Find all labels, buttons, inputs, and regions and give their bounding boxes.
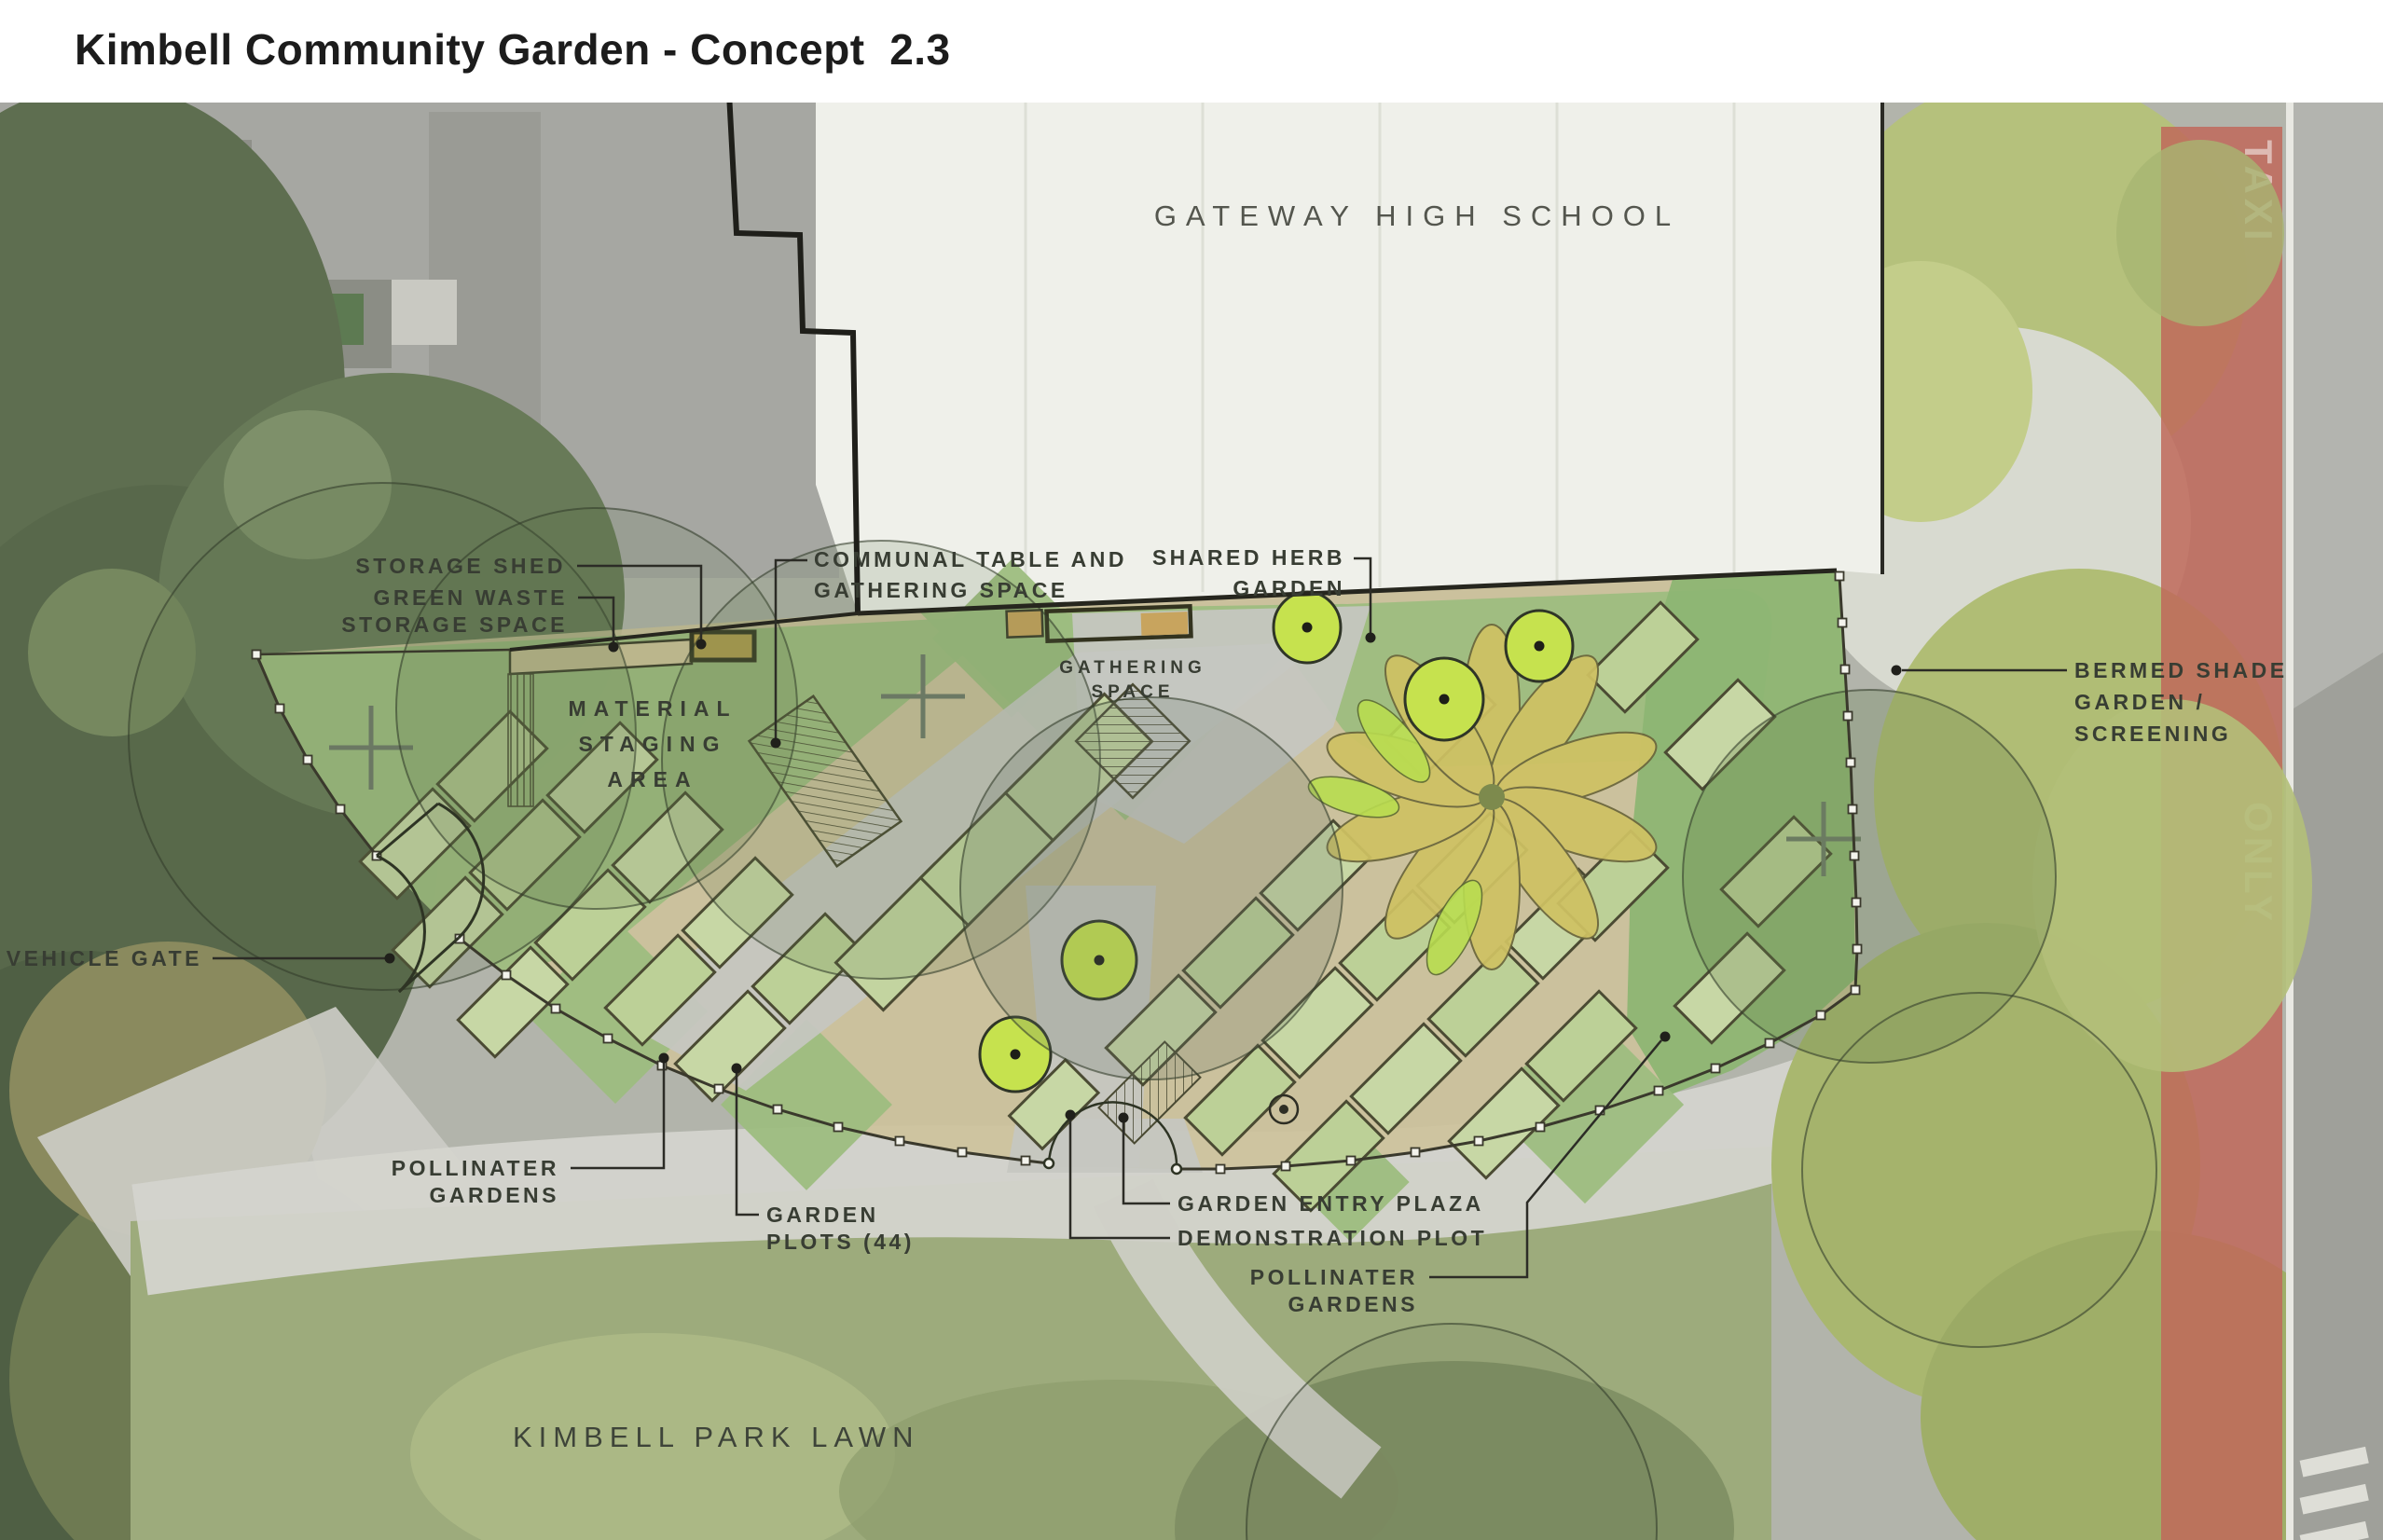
site-plan-page: Kimbell Community Garden - Concept 2.3 bbox=[0, 0, 2383, 1540]
label-green-waste-2: STORAGE SPACE bbox=[341, 612, 568, 637]
label-vehicle-gate: VEHICLE GATE bbox=[7, 946, 202, 970]
label-communal-2: GATHERING SPACE bbox=[814, 578, 1068, 602]
label-material-2: STAGING bbox=[578, 732, 726, 756]
label-green-waste-1: GREEN WASTE bbox=[374, 585, 568, 610]
label-herb-2: GARDEN bbox=[1233, 576, 1345, 600]
label-pollinater-left-2: GARDENS bbox=[429, 1183, 559, 1207]
label-demonstration: DEMONSTRATION PLOT bbox=[1178, 1226, 1487, 1250]
label-material-1: MATERIAL bbox=[568, 696, 737, 721]
label-pollinater-right-2: GARDENS bbox=[1288, 1292, 1418, 1316]
site-plan-canvas: TAXI ONLY GATEWAY HIGH SCHOOL bbox=[0, 0, 2383, 1540]
school-building: GATEWAY HIGH SCHOOL bbox=[816, 93, 1882, 613]
label-bermed-2: GARDEN / bbox=[2074, 690, 2205, 714]
page-title: Kimbell Community Garden - Concept 2.3 bbox=[75, 24, 951, 75]
label-material-3: AREA bbox=[607, 767, 697, 791]
label-storage-shed: STORAGE SHED bbox=[355, 554, 566, 578]
label-bermed-3: SCREENING bbox=[2074, 722, 2231, 746]
label-gathering-2: SPACE bbox=[1091, 682, 1174, 702]
label-pollinater-right-1: POLLINATER bbox=[1250, 1265, 1418, 1289]
label-garden-plots-1: GARDEN bbox=[766, 1203, 879, 1227]
label-bermed-1: BERMED SHADE bbox=[2074, 658, 2288, 682]
school-area-label: GATEWAY HIGH SCHOOL bbox=[1154, 199, 1680, 232]
page-header: Kimbell Community Garden - Concept 2.3 bbox=[0, 0, 2383, 103]
label-herb-1: SHARED HERB bbox=[1152, 545, 1345, 570]
label-entry-plaza: GARDEN ENTRY PLAZA bbox=[1178, 1191, 1484, 1216]
label-pollinater-left-1: POLLINATER bbox=[392, 1156, 559, 1180]
label-garden-plots-2: PLOTS (44) bbox=[766, 1230, 915, 1254]
label-communal-1: COMMUNAL TABLE AND bbox=[814, 547, 1127, 571]
label-gathering-1: GATHERING bbox=[1059, 658, 1206, 678]
lawn-area-label: KIMBELL PARK LAWN bbox=[513, 1421, 920, 1453]
